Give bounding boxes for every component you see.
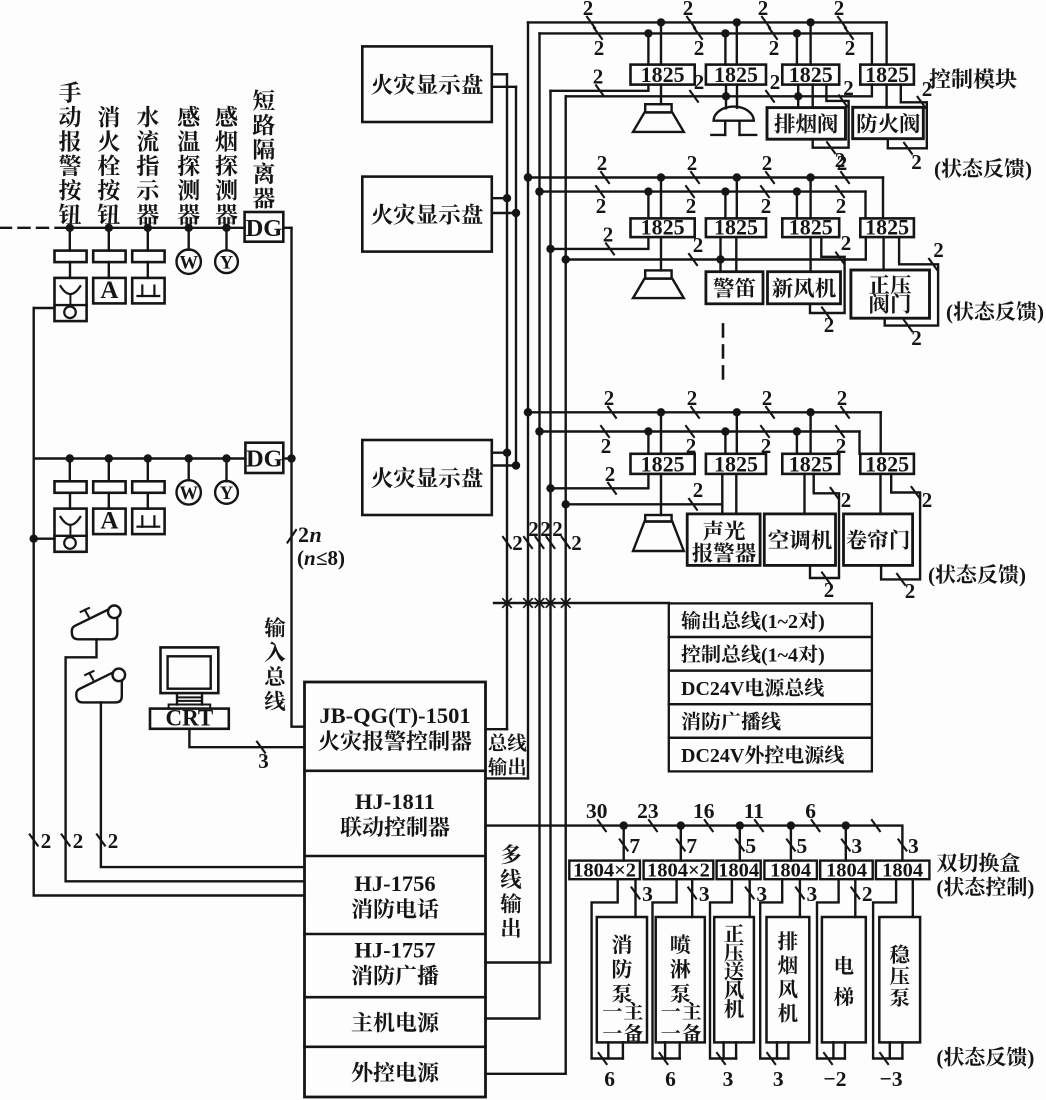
svg-text:16: 16 [693, 799, 715, 823]
svg-text:2: 2 [761, 194, 772, 218]
svg-text:(1~2: (1~2 [761, 611, 798, 633]
svg-text:): ) [818, 611, 825, 633]
svg-text:): ) [818, 644, 825, 666]
svg-text:DG: DG [246, 446, 283, 473]
svg-text:−2: −2 [823, 1067, 846, 1091]
svg-text:2: 2 [841, 231, 852, 255]
svg-text:): ) [1027, 1046, 1034, 1070]
svg-text:DC24V: DC24V [681, 678, 745, 700]
svg-text:2: 2 [694, 36, 705, 60]
svg-text:2: 2 [758, 0, 769, 20]
svg-text:≤8): ≤8) [316, 546, 345, 570]
svg-text:2: 2 [911, 150, 922, 174]
svg-text:2: 2 [605, 462, 616, 486]
svg-text:2: 2 [593, 64, 604, 88]
svg-text:2: 2 [837, 151, 848, 175]
svg-text:2: 2 [841, 488, 852, 512]
svg-text:2: 2 [824, 578, 835, 602]
svg-text:1825: 1825 [641, 452, 685, 477]
svg-text:2: 2 [862, 882, 873, 906]
svg-text:2: 2 [528, 517, 539, 541]
svg-text:(: ( [297, 546, 304, 570]
svg-text:1825: 1825 [641, 215, 685, 240]
svg-text:3: 3 [851, 834, 862, 858]
svg-text:6: 6 [805, 799, 816, 823]
svg-text:2: 2 [762, 386, 773, 410]
svg-text:2: 2 [683, 0, 694, 20]
svg-text:2: 2 [73, 829, 84, 853]
svg-text:3: 3 [699, 882, 710, 906]
svg-text:2: 2 [933, 238, 944, 262]
svg-text:2: 2 [603, 222, 614, 246]
svg-text:3: 3 [773, 1067, 784, 1091]
svg-text:5: 5 [745, 834, 756, 858]
svg-text:2: 2 [836, 194, 847, 218]
svg-text:A: A [100, 508, 118, 535]
svg-text:1804: 1804 [718, 859, 759, 881]
svg-text:2: 2 [693, 478, 704, 502]
svg-text:2: 2 [41, 829, 52, 853]
svg-text:1825: 1825 [865, 215, 909, 240]
svg-text:3: 3 [258, 749, 269, 773]
svg-text:CRT: CRT [166, 706, 214, 731]
svg-text:2: 2 [601, 434, 612, 458]
svg-text:1804×2: 1804×2 [647, 859, 710, 881]
svg-text:W: W [179, 253, 198, 273]
svg-text:2: 2 [922, 488, 933, 512]
svg-text:3: 3 [723, 1067, 734, 1091]
svg-text:1825: 1825 [641, 62, 685, 87]
svg-text:2: 2 [770, 70, 781, 94]
svg-text:5: 5 [797, 834, 808, 858]
svg-text:n: n [310, 522, 322, 547]
svg-text:6: 6 [604, 1067, 615, 1091]
svg-text:A: A [100, 277, 118, 304]
svg-text:Y: Y [220, 484, 234, 504]
svg-text:2: 2 [762, 151, 773, 175]
svg-text:2: 2 [298, 522, 309, 547]
svg-text:2: 2 [512, 531, 523, 555]
svg-text:2: 2 [911, 326, 922, 350]
svg-text:1804: 1804 [770, 859, 811, 881]
svg-text:2: 2 [596, 194, 607, 218]
svg-text:(: ( [936, 876, 943, 900]
svg-text:7: 7 [629, 834, 640, 858]
svg-text:(: ( [934, 157, 941, 181]
svg-text:2: 2 [687, 151, 698, 175]
svg-text:DC24V: DC24V [681, 745, 745, 767]
svg-text:2: 2 [583, 0, 594, 20]
svg-text:2: 2 [540, 517, 551, 541]
svg-text:2: 2 [837, 386, 848, 410]
svg-text:HJ-1756: HJ-1756 [354, 871, 435, 896]
svg-text:): ) [1037, 300, 1044, 324]
svg-text:2: 2 [597, 151, 608, 175]
svg-text:11: 11 [744, 799, 764, 823]
svg-text:): ) [1019, 563, 1026, 587]
svg-text:2: 2 [571, 531, 582, 555]
svg-text:2: 2 [845, 36, 856, 60]
svg-text:(: ( [946, 300, 953, 324]
svg-text:2: 2 [769, 36, 780, 60]
svg-text:1804: 1804 [882, 859, 923, 881]
svg-text:Y: Y [220, 253, 234, 273]
svg-text:2: 2 [687, 386, 698, 410]
svg-text:): ) [1027, 876, 1034, 900]
svg-text:HJ-1757: HJ-1757 [354, 938, 435, 963]
svg-text:2: 2 [834, 0, 845, 20]
svg-text:1804×2: 1804×2 [573, 859, 636, 881]
svg-text:2: 2 [905, 579, 916, 603]
svg-text:(: ( [928, 563, 935, 587]
svg-text:2: 2 [824, 313, 835, 337]
svg-text:30: 30 [586, 799, 608, 823]
svg-text:n: n [304, 546, 316, 570]
svg-text:HJ-1811: HJ-1811 [355, 789, 435, 814]
svg-text:2: 2 [843, 76, 854, 100]
svg-text:W: W [179, 484, 198, 504]
svg-text:1825: 1825 [865, 452, 909, 477]
svg-text:2: 2 [604, 386, 615, 410]
svg-text:7: 7 [686, 834, 697, 858]
svg-text:2: 2 [552, 517, 563, 541]
svg-text:2: 2 [594, 36, 605, 60]
svg-text:DG: DG [246, 215, 283, 242]
svg-text:): ) [1025, 157, 1032, 181]
svg-text:1804: 1804 [826, 859, 867, 881]
svg-text:1825: 1825 [789, 452, 833, 477]
svg-text:6: 6 [665, 1067, 676, 1091]
svg-text:3: 3 [908, 834, 919, 858]
svg-text:2: 2 [686, 194, 697, 218]
svg-text:23: 23 [637, 799, 659, 823]
svg-text:−3: −3 [880, 1067, 903, 1091]
svg-text:2: 2 [108, 829, 119, 853]
svg-text:(1~4: (1~4 [761, 644, 798, 666]
svg-text:(: ( [936, 1046, 943, 1070]
svg-text:JB-QG(T)-1501: JB-QG(T)-1501 [319, 703, 470, 728]
